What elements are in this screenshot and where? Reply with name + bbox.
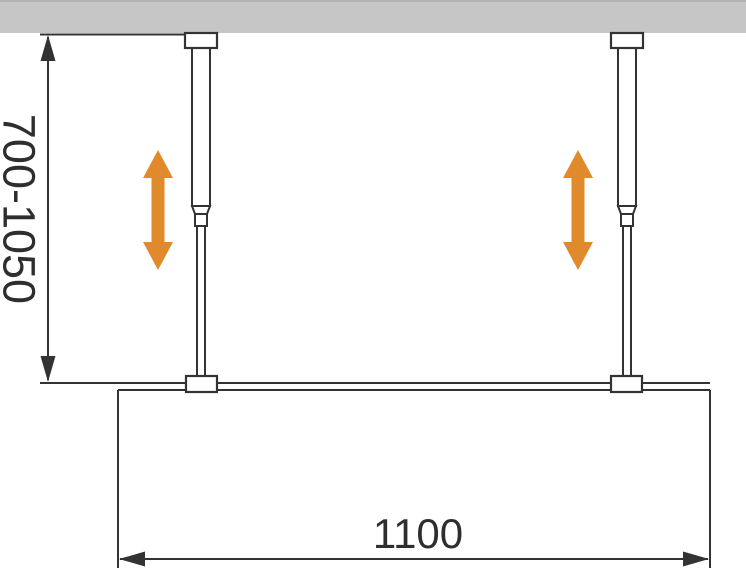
right-glass-clamp bbox=[611, 376, 642, 392]
vertical-dimension-arrow-up-icon bbox=[41, 35, 56, 61]
horizontal-dimension-label: 1100 bbox=[373, 513, 463, 555]
right-inner-rod bbox=[623, 226, 631, 377]
horizontal-dimension-arrow-left-icon bbox=[119, 552, 145, 567]
right-ceiling-flange bbox=[611, 33, 643, 48]
horizontal-dimension-arrow-right-icon bbox=[683, 552, 709, 567]
right-outer-tube bbox=[618, 48, 636, 206]
left-height-adjust-arrow-icon bbox=[143, 150, 173, 270]
vertical-dimension-label: 700-1050 bbox=[0, 114, 42, 304]
right-support-bar bbox=[611, 33, 643, 392]
left-glass-clamp bbox=[186, 376, 217, 392]
left-ceiling-flange bbox=[185, 33, 217, 48]
diagram-linework bbox=[0, 0, 746, 568]
left-lock-collar bbox=[195, 214, 207, 226]
right-height-adjust-arrow-icon bbox=[563, 150, 593, 270]
vertical-dimension-arrow-down-icon bbox=[41, 356, 56, 382]
left-support-bar bbox=[185, 33, 217, 392]
left-outer-tube bbox=[192, 48, 210, 206]
right-lock-collar bbox=[621, 214, 633, 226]
left-tube-taper bbox=[192, 206, 210, 214]
diagram-canvas: 700-1050 1100 bbox=[0, 0, 746, 568]
right-tube-taper bbox=[618, 206, 636, 214]
left-inner-rod bbox=[197, 226, 205, 377]
